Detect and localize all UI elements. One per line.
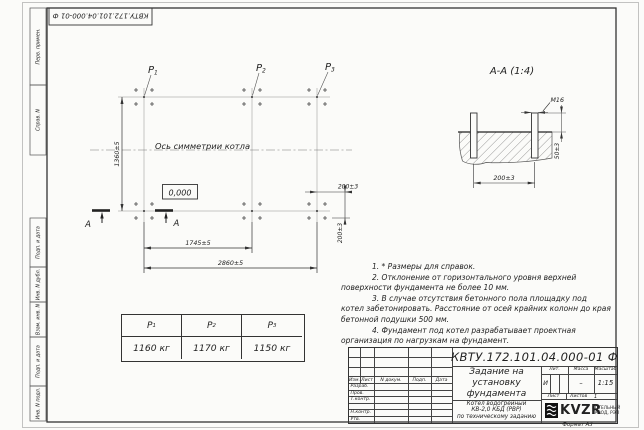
doc-subtitle-line: КВ-2,0 КБД (РВР)	[452, 407, 541, 414]
margin-label: Перв. примен.	[36, 28, 42, 64]
title-block: Изм. Лист N докум. Подп. Дата Разраб. Пр…	[348, 347, 618, 424]
dim-offset-v: 200±3	[337, 223, 344, 243]
bolt-thread-label: М16	[551, 97, 564, 104]
load-point-label-p1: P1	[148, 65, 158, 77]
load-table-header: P1	[122, 315, 182, 337]
doc-title: Задание на установку фундамента	[452, 367, 541, 400]
lit-value: И	[541, 379, 550, 387]
mass-value: –	[568, 379, 594, 387]
brand-subtitle-line: ЗАВОД, РЭП	[592, 411, 620, 416]
margin-label: Инв. N дубл.	[36, 269, 42, 300]
load-table-header: P3	[242, 315, 302, 337]
margin-label: Подп. и дата	[36, 345, 42, 378]
symmetry-axis-label: Ось симметрии котла	[155, 141, 250, 151]
row-label-tkontr: Т.контр.	[351, 397, 371, 402]
note-1: 1. * Размеры для справок.	[341, 262, 611, 273]
section-letter-left: A	[84, 220, 91, 230]
load-table: P1 P2 P3 1160 кг 1170 кг 1150 кг	[121, 314, 305, 362]
doc-title-line: установку	[452, 378, 541, 389]
level-mark: 0,000	[169, 189, 192, 198]
dim-protrusion: 50±3	[554, 143, 561, 160]
row-label-prov: Пров.	[351, 391, 364, 396]
logo-icon	[545, 403, 558, 418]
margin-label: Инв. N подл.	[36, 388, 42, 420]
drawing-sheet: КВТУ.172.101.04.000-01 Ф Перв. примен. С…	[0, 0, 644, 430]
doc-number: КВТУ.172.101.04.000-01 Ф	[452, 348, 617, 366]
p2-header-sub: 2	[212, 323, 216, 329]
sheets-label: Листов	[570, 394, 587, 399]
row-label-razrab: Разраб.	[351, 384, 369, 389]
row-label-nkontr: Н.контр.	[351, 410, 372, 415]
p2-sub: 2	[262, 68, 266, 75]
dim-span-outer: 2860±5	[218, 260, 243, 267]
margin-label: Взам. инв. N	[36, 304, 42, 336]
col-header-izm: Изм.	[349, 378, 360, 383]
note-4: 4. Фундамент под котел разрабатывает про…	[341, 326, 611, 347]
load-value: 1170 кг	[182, 337, 242, 359]
load-value: 1160 кг	[122, 337, 182, 359]
section-cut-marks: A A	[84, 209, 179, 230]
p3-header-sub: 3	[273, 323, 277, 329]
section-title: А-А (1:4)	[489, 66, 534, 77]
anchor-bolt-right	[532, 113, 539, 158]
section-letter-right: A	[173, 219, 180, 229]
anchor-bolt-left	[471, 113, 478, 158]
p1-sub: 1	[154, 70, 158, 77]
top-reference-stamp: КВТУ.172.101.04.000-01 Ф	[49, 8, 152, 25]
doc-subtitle-line: Котел водогрейный	[452, 401, 541, 408]
mass-header: Масса	[568, 367, 594, 372]
note-3: 3. В случае отсутствия бетонного пола пл…	[341, 294, 611, 326]
doc-title-line: Задание на	[452, 367, 541, 378]
section-view: А-А (1:4) М16 50±3 200±3	[458, 66, 566, 188]
row-label-utv: Утв.	[351, 417, 361, 422]
col-header-data: Дата	[431, 378, 452, 383]
col-header-list: Лист	[360, 378, 374, 383]
col-header-ndocum: N докум.	[374, 378, 408, 383]
dim-bolt-spacing: 200±3	[493, 175, 514, 182]
margin-labels: Перв. примен. Справ. N Подп. и дата Инв.…	[36, 28, 42, 419]
anchor-bolt-marks	[134, 88, 327, 220]
scale-header: Масштаб	[594, 367, 617, 372]
sheets-value: 1	[594, 394, 597, 400]
format-note: Формат А3	[545, 422, 610, 428]
load-value: 1150 кг	[242, 337, 302, 359]
col-header-podp: Подп.	[408, 378, 431, 383]
margin-label: Справ. N	[36, 109, 42, 131]
load-point-label-p3: P3	[325, 62, 335, 74]
sheet-label: Лист	[541, 394, 566, 399]
lit-header: Лит.	[541, 367, 568, 372]
margin-label: Подп. и дата	[36, 226, 42, 259]
scale-value: 1:15	[594, 379, 617, 387]
plan-view: P1 P2 P3 Ось симметрии котла 0,000 1360±…	[84, 62, 358, 273]
technical-notes: 1. * Размеры для справок. 2. Отклонение …	[341, 262, 611, 347]
dim-span-inner: 1745±5	[185, 240, 210, 247]
brand-subtitle: КОТЕЛЬНЫЙ ЗАВОД, РЭП	[592, 406, 620, 417]
top-stamp-number: КВТУ.172.101.04.000-01 Ф	[53, 12, 149, 20]
doc-subtitle-line: по техническому заданию	[452, 414, 541, 421]
dim-height: 1360±5	[114, 141, 121, 166]
p1-header-sub: 1	[152, 323, 156, 329]
doc-title-line: фундамента	[452, 389, 541, 400]
dim-offset-h: 200±3	[338, 184, 358, 191]
p3-sub: 3	[331, 67, 335, 74]
doc-subtitle: Котел водогрейный КВ-2,0 КБД (РВР) по те…	[452, 401, 541, 422]
leader-lines	[145, 72, 329, 96]
load-point-label-p2: P2	[256, 63, 266, 75]
note-2: 2. Отклонение от горизонтального уровня …	[341, 273, 611, 294]
load-table-header: P2	[182, 315, 242, 337]
